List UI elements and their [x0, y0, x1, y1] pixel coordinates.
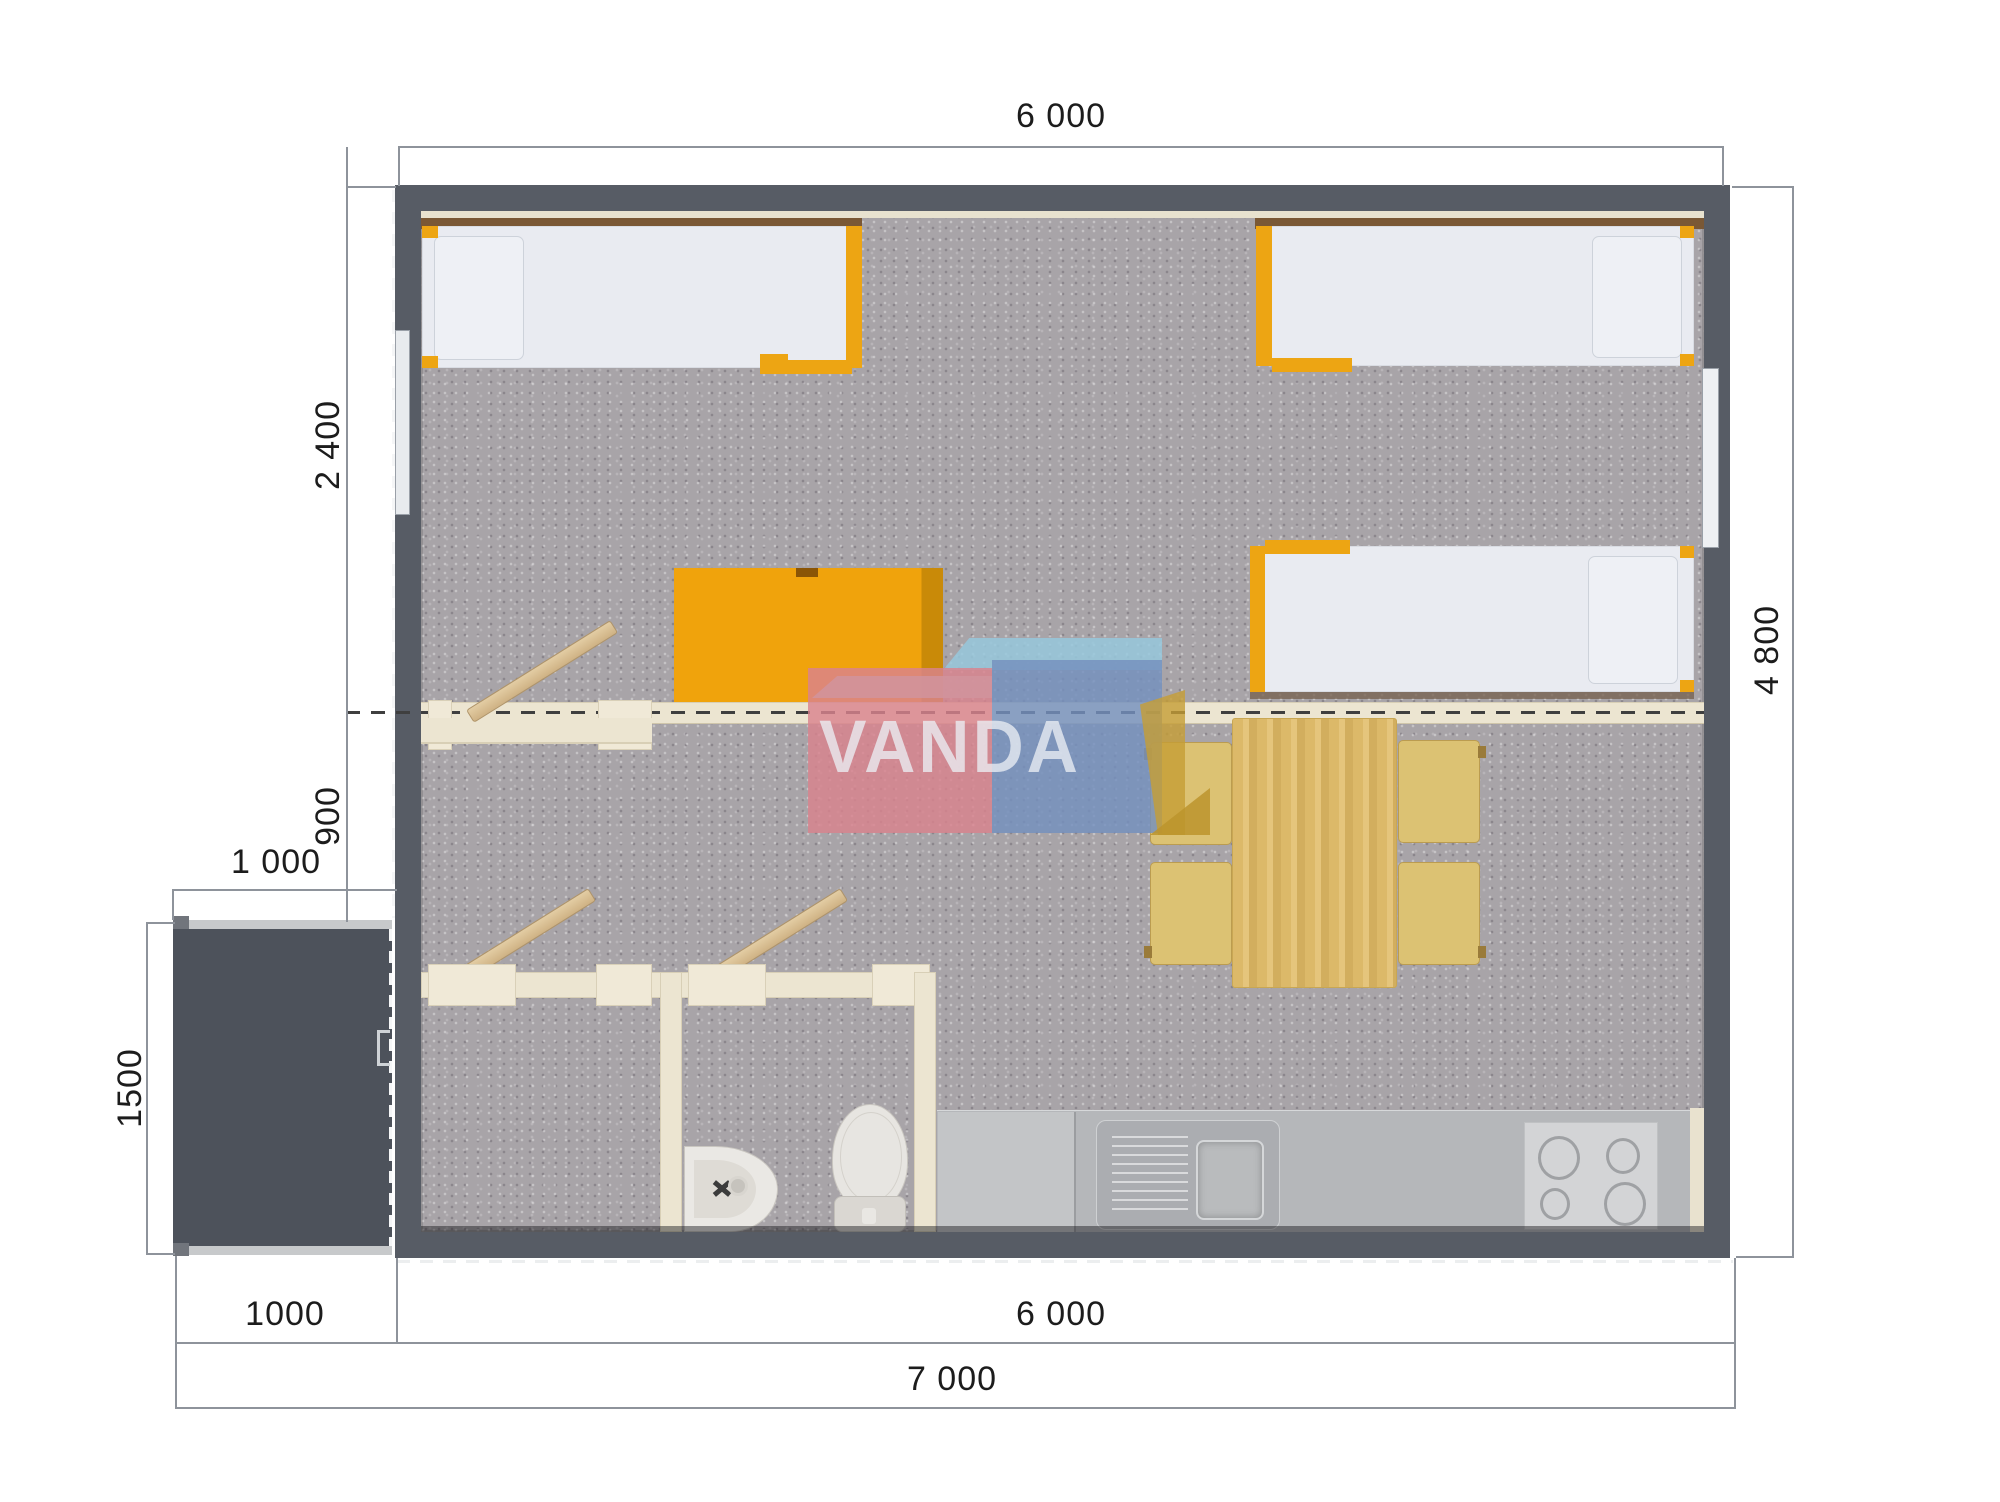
- dim-label-bottom-total: 7 000: [882, 1359, 1022, 1399]
- bathroom-right-wall: [914, 972, 936, 1232]
- dim-ext: [398, 146, 400, 186]
- desk-notch: [796, 568, 818, 577]
- dining-chair: [1398, 740, 1480, 843]
- bottom-wall-shadow: [421, 1226, 1704, 1232]
- bed-frame-headboard: [846, 226, 862, 368]
- bathroom-wall-tab: [688, 964, 766, 1006]
- stove-burner: [1606, 1138, 1640, 1174]
- chair-leg: [1478, 746, 1486, 758]
- sink-drain: [728, 1176, 748, 1196]
- dim-line-right: [1792, 186, 1794, 1258]
- pillow: [434, 236, 524, 360]
- watermark-text: VANDA: [816, 696, 1085, 796]
- top-wall-trim-cream: [421, 211, 1704, 218]
- dim-ext: [1734, 1258, 1736, 1407]
- porch-corner-tab-top: [173, 916, 189, 929]
- dim-ext: [396, 1258, 398, 1342]
- entry-door-handle: [377, 1030, 390, 1066]
- pillow: [1588, 556, 1678, 684]
- toilet-lid-inner: [840, 1112, 902, 1202]
- bed-frame-rail: [1272, 358, 1352, 372]
- bathroom-wall-tab: [596, 964, 652, 1006]
- dining-table: [1232, 718, 1397, 988]
- dim-line-top: [398, 146, 1724, 148]
- bed-frame-corner: [1680, 546, 1694, 558]
- bed-frame-headboard: [1250, 546, 1265, 692]
- porch: [173, 920, 392, 1255]
- dim-label-bottom-building: 6 000: [991, 1294, 1131, 1334]
- dim-line-bottom-2: [175, 1407, 1736, 1409]
- bench-seat: [421, 718, 652, 744]
- dim-ext: [1736, 1256, 1794, 1258]
- dim-label-right-height: 4 800: [1747, 580, 1787, 720]
- kitchen-right-trim: [1690, 1108, 1704, 1232]
- porch-corner-tab-bottom: [173, 1243, 189, 1256]
- floor-plan-canvas: VANDA 6 000 4 800 2 400 900 1 000 1500 1…: [0, 0, 2000, 1502]
- dim-label-top-width: 6 000: [991, 96, 1131, 136]
- left-wall-dashed-edge: [392, 190, 395, 918]
- pillow: [1592, 236, 1682, 358]
- kitchen-sink-basin: [1196, 1140, 1264, 1220]
- stove-burner: [1604, 1182, 1646, 1226]
- dim-ext: [175, 1256, 177, 1407]
- bed-frame-corner: [422, 226, 438, 238]
- dining-chair: [1150, 862, 1232, 965]
- bathroom-wall-tab: [428, 964, 516, 1006]
- partition-dash-extension: [346, 711, 421, 714]
- entry-door-dashed-line: [389, 929, 392, 1246]
- dim-label-bedroom-depth: 2 400: [308, 375, 348, 515]
- dim-ext: [1732, 186, 1794, 188]
- bed-frame-rail: [1265, 540, 1350, 554]
- dim-label-porch-width-top: 1 000: [206, 842, 346, 882]
- chair-leg: [1478, 946, 1486, 958]
- window-left-wall: [395, 330, 410, 515]
- dim-ext: [146, 1253, 175, 1255]
- dim-ext: [172, 889, 174, 920]
- bed-frame-corner: [1680, 680, 1694, 692]
- dim-ext: [1722, 146, 1724, 186]
- dim-ext: [346, 186, 396, 188]
- dim-label-porch-depth: 1500: [110, 1018, 150, 1158]
- window-right-wall: [1702, 368, 1719, 548]
- toilet-flush-button: [862, 1208, 876, 1224]
- dim-line-bottom-1: [175, 1342, 1736, 1344]
- bed-frame-corner: [422, 356, 438, 368]
- stove-burner: [1540, 1188, 1570, 1220]
- porch-roof-edge-bottom: [176, 1246, 392, 1255]
- chair-leg: [1144, 946, 1152, 958]
- bottom-wall-dashed-edge: [397, 1260, 1733, 1263]
- dining-chair: [1398, 862, 1480, 965]
- porch-roof-edge-top: [176, 920, 392, 929]
- dim-ext: [146, 922, 175, 924]
- bed-frame-corner: [1680, 354, 1694, 366]
- kitchen-appliance-left: [938, 1112, 1076, 1232]
- bed-frame-tab: [760, 354, 788, 374]
- drainboard-ridges: [1112, 1136, 1188, 1216]
- bed-frame-headboard: [1256, 226, 1272, 366]
- stove-burner: [1538, 1136, 1580, 1180]
- bathroom-divider-wall: [660, 972, 682, 1232]
- dim-line-porch-top: [172, 889, 397, 891]
- bed-frame-corner: [1680, 226, 1694, 238]
- dim-label-bottom-porch: 1000: [215, 1294, 355, 1334]
